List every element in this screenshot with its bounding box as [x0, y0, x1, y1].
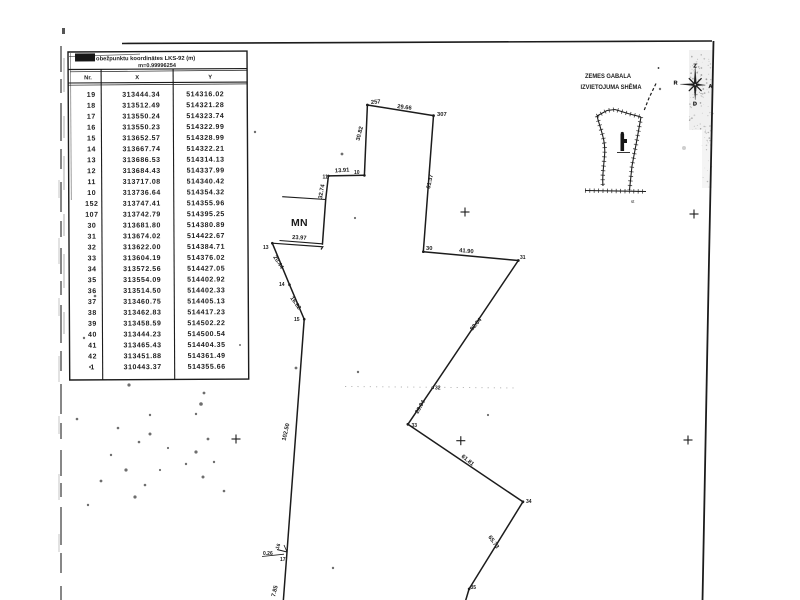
svg-text:13: 13 — [263, 245, 269, 251]
svg-text:23.97: 23.97 — [292, 235, 307, 242]
svg-text:313458.59: 313458.59 — [123, 320, 161, 327]
svg-text:514323.74: 514323.74 — [186, 113, 224, 120]
svg-text:514395.25: 514395.25 — [187, 211, 225, 218]
svg-text:Y: Y — [208, 75, 212, 81]
svg-text:514314.13: 514314.13 — [187, 157, 225, 164]
svg-text:514422.67: 514422.67 — [187, 233, 225, 240]
svg-text:313747.41: 313747.41 — [123, 201, 161, 208]
svg-text:A: A — [709, 84, 713, 90]
svg-text:313622.00: 313622.00 — [123, 244, 161, 251]
svg-text:514427.05: 514427.05 — [187, 266, 225, 273]
svg-text:31: 31 — [520, 255, 526, 261]
svg-text:107: 107 — [85, 212, 98, 219]
svg-text:37: 37 — [88, 299, 97, 306]
svg-text:IZVIETOJUMA SHĒMA: IZVIETOJUMA SHĒMA — [581, 84, 642, 91]
svg-text:514500.54: 514500.54 — [187, 331, 225, 338]
svg-text:14: 14 — [87, 146, 96, 153]
svg-text:10: 10 — [87, 190, 96, 197]
svg-text:19: 19 — [87, 92, 96, 99]
svg-text:514322.99: 514322.99 — [186, 124, 224, 131]
svg-text:R: R — [674, 81, 678, 87]
svg-text:17: 17 — [280, 557, 286, 563]
svg-text:30: 30 — [87, 223, 96, 230]
svg-text:313550.23: 313550.23 — [122, 124, 160, 131]
svg-text:18: 18 — [87, 103, 96, 110]
svg-text:313717.08: 313717.08 — [123, 179, 161, 186]
svg-text:313667.74: 313667.74 — [122, 146, 160, 153]
svg-text:514337.99: 514337.99 — [187, 167, 225, 174]
svg-text:34: 34 — [526, 499, 532, 505]
svg-text:514502.22: 514502.22 — [187, 320, 225, 327]
svg-text:39: 39 — [88, 321, 97, 328]
svg-text:313444.23: 313444.23 — [123, 331, 161, 338]
svg-text:D: D — [693, 102, 697, 108]
svg-text:41.90: 41.90 — [459, 248, 474, 255]
svg-text:313686.53: 313686.53 — [123, 157, 161, 164]
svg-text:X: X — [135, 75, 139, 81]
svg-text:514402.92: 514402.92 — [187, 276, 225, 283]
svg-text:313572.56: 313572.56 — [123, 266, 161, 273]
svg-text:307: 307 — [437, 112, 447, 118]
svg-text:313550.24: 313550.24 — [122, 113, 160, 120]
svg-text:33: 33 — [88, 255, 97, 262]
svg-text:310443.37: 310443.37 — [124, 364, 162, 371]
svg-text:313512.49: 313512.49 — [122, 102, 160, 109]
svg-text:m=0.99996254: m=0.99996254 — [138, 63, 177, 69]
svg-text:313451.88: 313451.88 — [124, 353, 162, 360]
svg-text:13: 13 — [87, 157, 96, 164]
svg-text:313681.80: 313681.80 — [123, 222, 161, 229]
svg-text:313742.79: 313742.79 — [123, 211, 161, 218]
svg-text:313462.83: 313462.83 — [123, 310, 161, 317]
svg-text:33: 33 — [412, 423, 418, 429]
svg-text:514340.42: 514340.42 — [187, 178, 225, 185]
svg-text:35: 35 — [471, 585, 477, 591]
svg-text:514417.23: 514417.23 — [187, 309, 225, 316]
svg-text:152: 152 — [85, 201, 98, 208]
svg-text:ZEMES GABALA: ZEMES GABALA — [585, 73, 631, 80]
svg-text:514384.71: 514384.71 — [187, 244, 225, 251]
svg-text:15: 15 — [87, 135, 96, 142]
svg-text:32: 32 — [88, 244, 97, 251]
svg-text:313444.34: 313444.34 — [122, 92, 160, 99]
svg-text:313554.09: 313554.09 — [123, 277, 161, 284]
svg-text:514354.32: 514354.32 — [187, 189, 225, 196]
svg-text:42: 42 — [88, 353, 97, 360]
svg-text:12: 12 — [87, 168, 96, 175]
svg-text:313684.43: 313684.43 — [123, 168, 161, 175]
svg-text:Nr.: Nr. — [84, 75, 92, 81]
svg-text:10: 10 — [354, 170, 360, 176]
svg-text:313460.75: 313460.75 — [123, 299, 161, 306]
svg-text:11: 11 — [323, 175, 329, 181]
svg-text:13.91: 13.91 — [335, 167, 351, 174]
svg-text:514328.99: 514328.99 — [186, 135, 224, 142]
svg-text:obežpunktu koordinātes LKS-92: obežpunktu koordinātes LKS-92 (m) — [96, 56, 195, 63]
svg-text:313736.64: 313736.64 — [123, 190, 161, 197]
svg-text:313652.57: 313652.57 — [122, 135, 160, 142]
svg-text:313465.43: 313465.43 — [123, 342, 161, 349]
svg-text:40: 40 — [88, 332, 97, 339]
svg-text:514322.21: 514322.21 — [186, 146, 224, 153]
svg-text:MN: MN — [291, 217, 308, 229]
svg-text:41: 41 — [88, 343, 97, 350]
svg-text:15: 15 — [294, 317, 300, 323]
svg-text:11: 11 — [87, 179, 96, 186]
svg-text:514361.49: 514361.49 — [188, 353, 226, 360]
svg-text:31: 31 — [88, 234, 97, 241]
svg-text:514402.33: 514402.33 — [187, 287, 225, 294]
svg-text:514404.35: 514404.35 — [187, 342, 225, 349]
svg-text:313514.50: 313514.50 — [123, 288, 161, 295]
svg-text:16: 16 — [87, 125, 96, 132]
svg-text:313604.19: 313604.19 — [123, 255, 161, 262]
svg-text:30: 30 — [426, 246, 432, 252]
svg-text:32: 32 — [435, 386, 441, 392]
svg-text:38: 38 — [88, 310, 97, 317]
svg-text:514316.02: 514316.02 — [186, 91, 224, 98]
svg-text:36: 36 — [88, 288, 97, 295]
svg-text:34: 34 — [88, 266, 97, 273]
svg-text:514355.66: 514355.66 — [188, 364, 226, 371]
svg-text:514380.89: 514380.89 — [187, 222, 225, 229]
svg-text:514321.28: 514321.28 — [186, 102, 224, 109]
svg-text:17: 17 — [87, 114, 96, 121]
svg-text:313674.02: 313674.02 — [123, 233, 161, 240]
svg-text:257: 257 — [371, 99, 381, 106]
svg-text:514355.96: 514355.96 — [187, 200, 225, 207]
svg-text:1: 1 — [90, 364, 94, 371]
svg-text:514376.02: 514376.02 — [187, 255, 225, 262]
svg-text:35: 35 — [88, 277, 97, 284]
svg-text:514405.13: 514405.13 — [187, 298, 225, 305]
svg-text:14: 14 — [279, 282, 285, 288]
